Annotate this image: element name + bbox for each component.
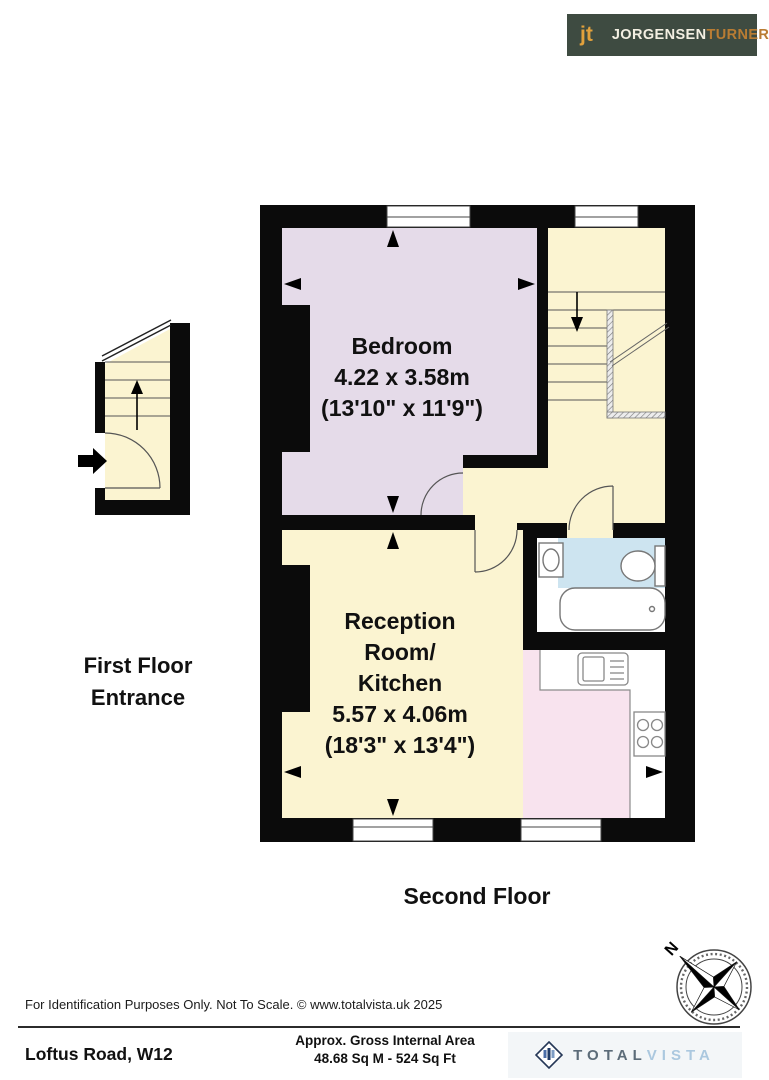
bathtub-drain: [650, 607, 655, 612]
reception-door-gap: [475, 515, 517, 530]
entrance-label-line2: Entrance: [48, 682, 228, 714]
entry-arrow: [78, 448, 107, 474]
bathroom-door-gap: [567, 523, 613, 538]
entrance-wall: [170, 323, 190, 515]
property-address: Loftus Road, W12: [25, 1044, 173, 1065]
brand-name-primary: JORGENSEN: [612, 27, 707, 43]
basin-icon: [543, 549, 559, 571]
entrance-wall: [95, 488, 105, 502]
jt-monogram-icon: jt: [580, 23, 593, 47]
reception-name-line3: Kitchen: [285, 668, 515, 699]
totalvista-logo: TOTALVISTA: [508, 1032, 742, 1078]
reception-name-line2: Room/: [285, 637, 515, 668]
disclaimer-text: For Identification Purposes Only. Not To…: [25, 997, 442, 1012]
area-value: 48.68 Sq M - 524 Sq Ft: [255, 1050, 515, 1068]
bedroom-dimensions-metric: 4.22 x 3.58m: [287, 362, 517, 393]
bedroom-name: Bedroom: [287, 331, 517, 362]
totalvista-diamond-icon: [535, 1041, 563, 1069]
footer-divider: [18, 1026, 740, 1028]
entrance-floorplan: [78, 320, 190, 515]
totalvista-word1: TOTAL: [573, 1047, 647, 1064]
reception-dimensions-metric: 5.57 x 4.06m: [285, 699, 515, 730]
kitchen-sink-icon: [583, 657, 604, 681]
jorgensen-turner-logo: jt JORGENSENTURNER: [567, 14, 757, 56]
bedroom-label: Bedroom 4.22 x 3.58m (13'10" x 11'9"): [287, 331, 517, 424]
floor-label: Second Floor: [327, 883, 627, 910]
entrance-label: First Floor Entrance: [48, 650, 228, 714]
toilet-icon: [621, 551, 655, 581]
hob-icon: [634, 712, 665, 756]
area-label: Approx. Gross Internal Area: [255, 1032, 515, 1050]
floorplan-canvas: N: [0, 0, 769, 1080]
brand-name-secondary: TURNER: [706, 27, 769, 43]
totalvista-word2: VISTA: [647, 1047, 715, 1064]
entrance-label-line1: First Floor: [48, 650, 228, 682]
compass-rose: N: [643, 918, 762, 1035]
entrance-wall: [95, 500, 190, 515]
gross-internal-area: Approx. Gross Internal Area 48.68 Sq M -…: [255, 1032, 515, 1068]
reception-name-line1: Reception: [285, 606, 515, 637]
bedroom-dimensions-imperial: (13'10" x 11'9"): [287, 393, 517, 424]
stair-railing: [607, 310, 613, 418]
entrance-wall: [95, 362, 105, 433]
reception-label: Reception Room/ Kitchen 5.57 x 4.06m (18…: [285, 606, 515, 761]
stair-railing: [607, 412, 665, 418]
toilet-icon: [655, 546, 665, 586]
compass-north-label: N: [662, 939, 682, 959]
reception-dimensions-imperial: (18'3" x 13'4"): [285, 730, 515, 761]
